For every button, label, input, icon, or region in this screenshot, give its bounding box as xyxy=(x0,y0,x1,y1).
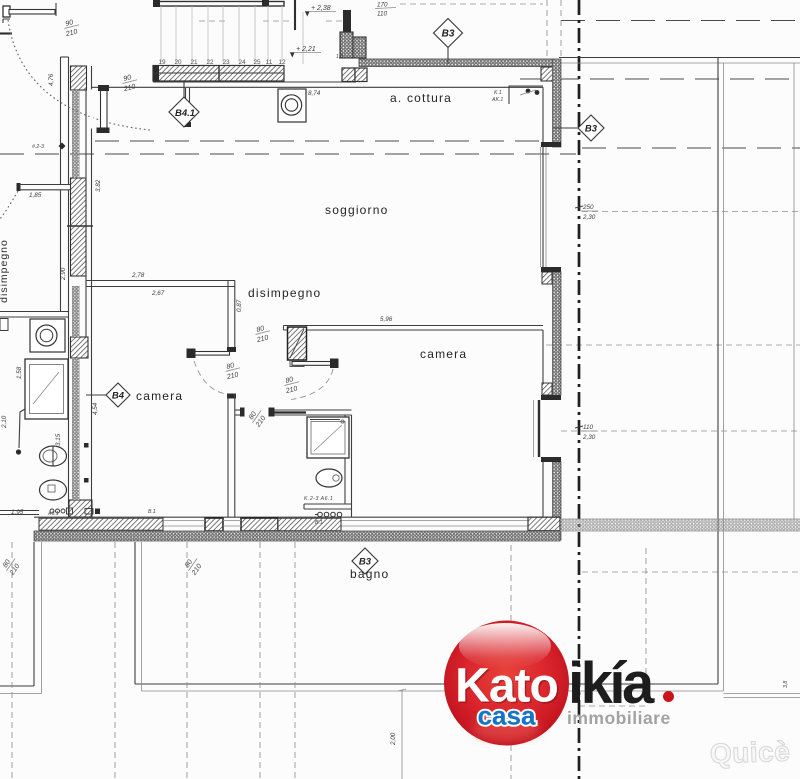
svg-text:B4.1: B4.1 xyxy=(175,108,195,119)
svg-text:110: 110 xyxy=(377,11,388,18)
svg-text:3,15: 3,15 xyxy=(55,433,62,446)
svg-text:8,74: 8,74 xyxy=(308,90,321,97)
svg-text:+ 2,38: + 2,38 xyxy=(311,5,331,12)
svg-text:B.1: B.1 xyxy=(315,520,323,526)
svg-text:4,54: 4,54 xyxy=(92,402,99,415)
svg-text:AK.1: AK.1 xyxy=(491,97,503,103)
svg-text:4,76: 4,76 xyxy=(48,73,55,86)
svg-text:soggiorno: soggiorno xyxy=(325,203,389,217)
svg-text:2,10: 2,10 xyxy=(1,415,8,429)
svg-text:2,30: 2,30 xyxy=(582,434,596,441)
svg-text:5,96: 5,96 xyxy=(380,316,393,323)
svg-text:1,58: 1,58 xyxy=(16,366,23,379)
svg-text:camera: camera xyxy=(420,347,467,361)
svg-text:K.1: K.1 xyxy=(494,90,502,96)
svg-text:2,78: 2,78 xyxy=(131,272,145,279)
svg-text:B3: B3 xyxy=(585,124,598,135)
svg-text:camera: camera xyxy=(136,389,183,403)
svg-text:2,90: 2,90 xyxy=(60,267,67,281)
svg-text:1,3: 1,3 xyxy=(336,54,343,60)
svg-text:3,8: 3,8 xyxy=(783,681,789,688)
svg-text:2,30: 2,30 xyxy=(582,214,596,221)
svg-text:B3: B3 xyxy=(442,29,455,40)
svg-text:K.2-3 A6.1: K.2-3 A6.1 xyxy=(304,496,333,502)
svg-text:Quicè: Quicè xyxy=(709,736,790,770)
svg-text:0,87: 0,87 xyxy=(236,299,243,312)
svg-text:1,85: 1,85 xyxy=(29,192,42,199)
svg-text:disimpegno: disimpegno xyxy=(0,239,10,303)
svg-text:B3: B3 xyxy=(359,557,372,568)
svg-text:2,00: 2,00 xyxy=(390,732,397,746)
svg-text:3,82: 3,82 xyxy=(95,179,102,192)
svg-text:170: 170 xyxy=(377,2,388,9)
svg-text:250: 250 xyxy=(582,204,594,211)
svg-text:110: 110 xyxy=(583,424,594,431)
svg-text:a. cottura: a. cottura xyxy=(390,91,452,105)
svg-text:1,95: 1,95 xyxy=(11,509,24,516)
svg-text:#.2-3: #.2-3 xyxy=(32,144,44,150)
svg-text:A6.1: A6.1 xyxy=(47,511,59,517)
svg-text:disimpegno: disimpegno xyxy=(248,286,321,300)
svg-text:B4: B4 xyxy=(112,391,125,402)
svg-text:immobiliare: immobiliare xyxy=(567,708,671,728)
svg-text:2,67: 2,67 xyxy=(151,290,165,297)
svg-text:casa: casa xyxy=(478,701,536,731)
svg-text:ikía: ikía xyxy=(568,651,655,716)
svg-text:+ 2,21: + 2,21 xyxy=(296,46,316,53)
svg-text:B.1: B.1 xyxy=(148,509,156,515)
